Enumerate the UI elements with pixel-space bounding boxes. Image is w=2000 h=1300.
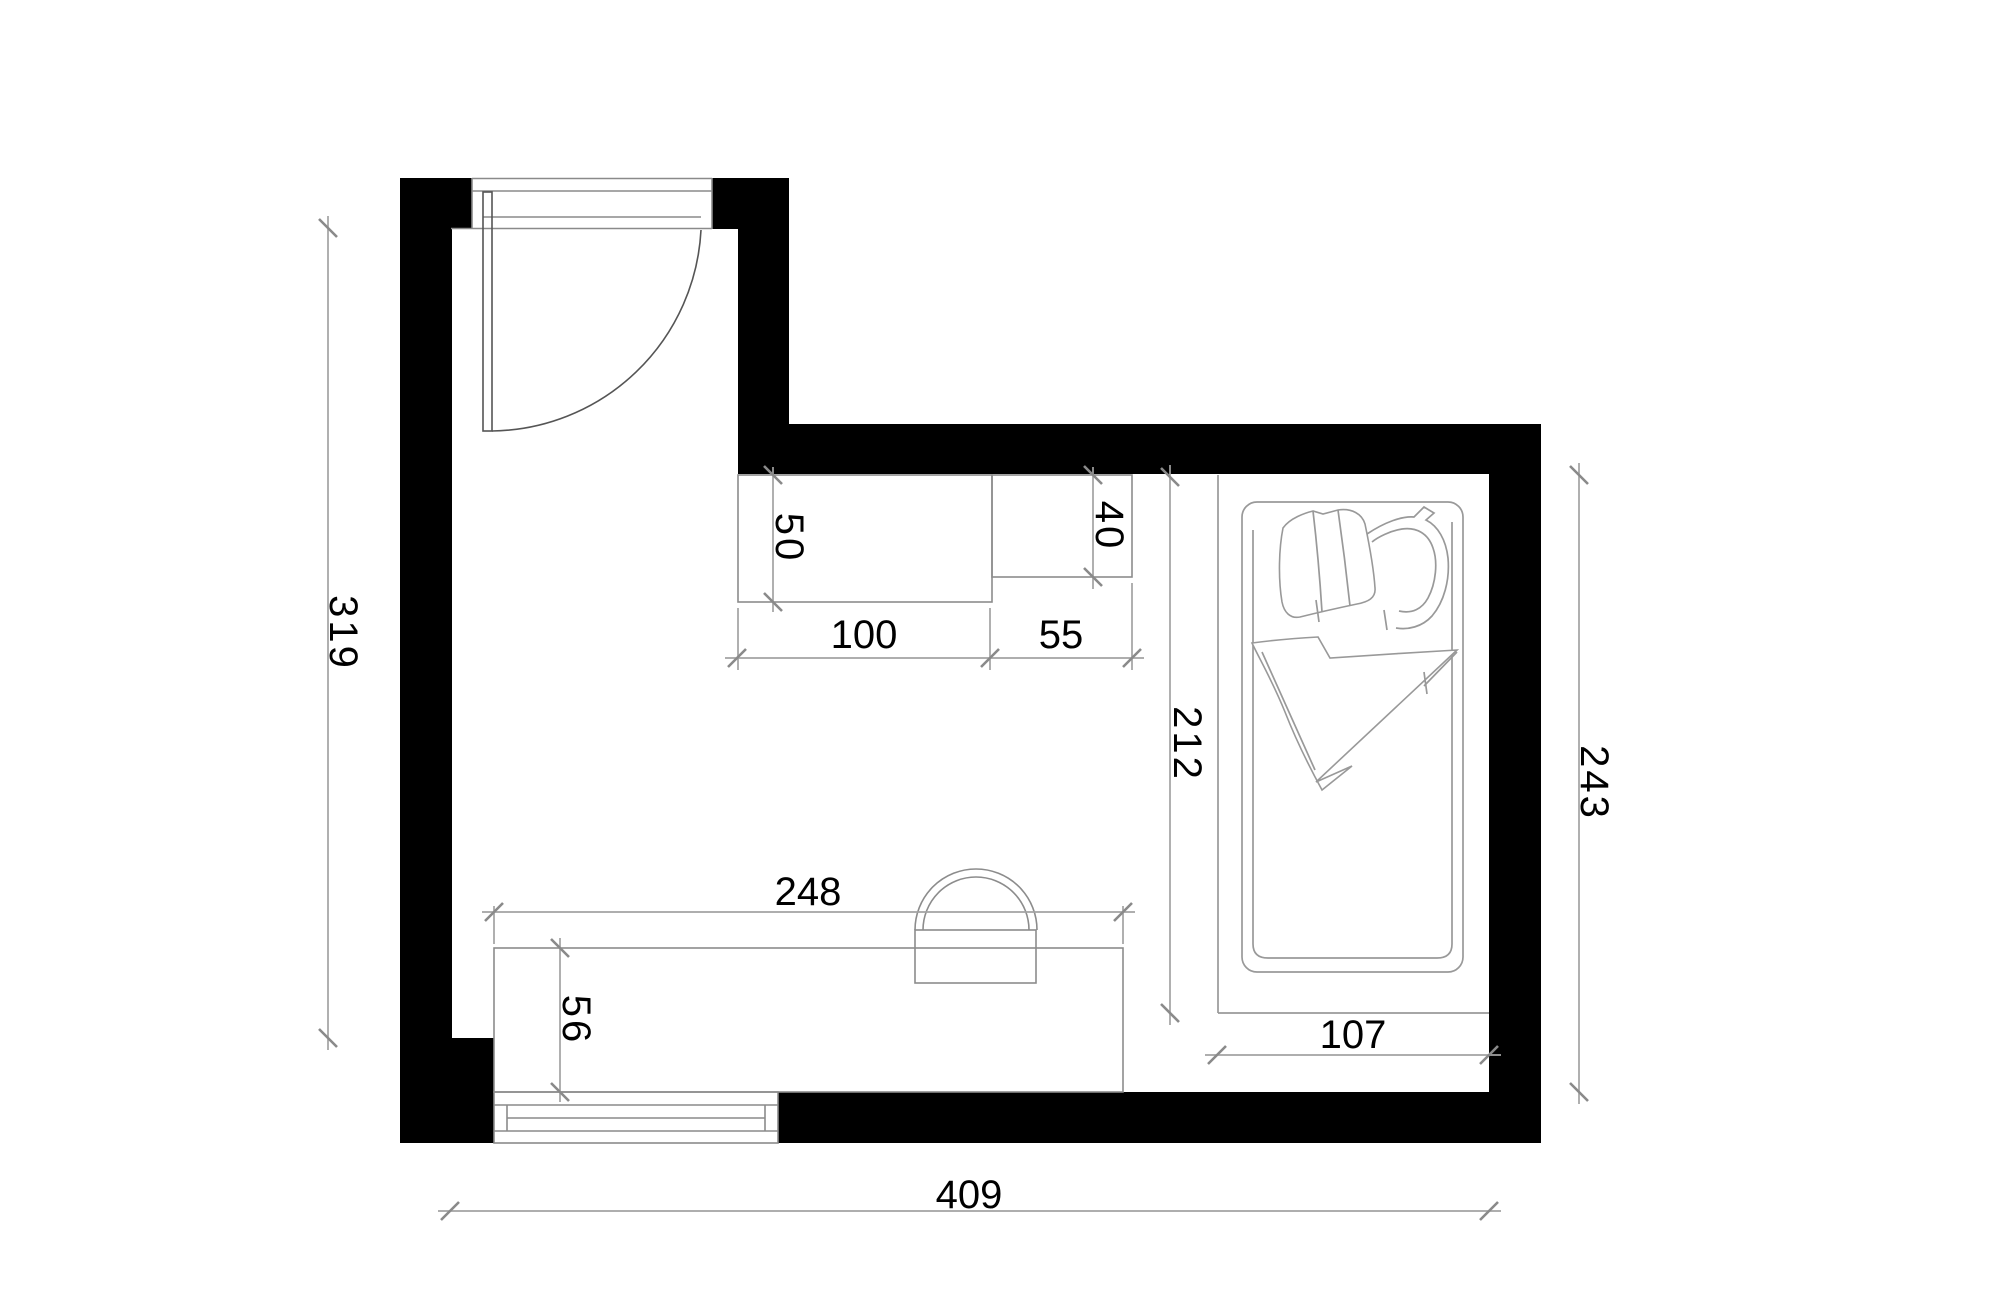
dim-label-319: 319 (321, 595, 365, 671)
floor-plan-sheet: 319 243 212 50 40 (0, 0, 2000, 1300)
dim-bed-zone-width: 107 (1205, 1013, 1501, 1064)
dim-label-56: 56 (554, 995, 598, 1046)
dim-dresser-depth: 40 (1084, 466, 1131, 589)
wall-bottom (778, 1092, 1541, 1143)
dim-label-40: 40 (1087, 501, 1131, 552)
dim-room-height-left: 319 (319, 216, 365, 1050)
wall-window-pier (450, 1038, 494, 1143)
bed (1242, 502, 1463, 972)
wall-entry-east (738, 178, 789, 474)
blanket (1252, 637, 1457, 790)
wall-door-jamb-right (712, 178, 738, 229)
dim-label-409: 409 (936, 1173, 1003, 1217)
dim-room-height-right: 243 (1570, 463, 1616, 1104)
dim-label-243: 243 (1572, 745, 1616, 821)
pillow-left (1279, 510, 1375, 618)
dim-bed-zone-height: 212 (1161, 465, 1209, 1025)
wall-top (789, 424, 1541, 474)
chair-seat (915, 930, 1036, 983)
dim-label-107: 107 (1320, 1013, 1387, 1057)
dim-desk-depth: 56 (551, 938, 598, 1102)
pillow-right-inner (1372, 529, 1436, 612)
dim-room-width-bottom: 409 (438, 1173, 1501, 1220)
floor-plan: 319 243 212 50 40 (0, 0, 2000, 1300)
dim-cabinet-row: 100 55 (725, 583, 1144, 670)
furniture (494, 475, 1489, 1092)
window (494, 1092, 778, 1143)
wall-door-jamb-left (451, 178, 472, 229)
wall-left (400, 178, 452, 1143)
dim-desk-width: 248 (482, 870, 1135, 944)
dimensions: 319 243 212 50 40 (319, 216, 1616, 1220)
chair (915, 869, 1037, 983)
door (451, 178, 712, 431)
dim-cabinet-depth: 50 (764, 466, 811, 612)
chair-backrest-inner (923, 877, 1029, 930)
dim-label-100: 100 (831, 613, 898, 657)
dim-label-212: 212 (1165, 706, 1209, 782)
dim-label-50: 50 (767, 513, 811, 564)
door-swing-arc (492, 230, 701, 431)
dim-label-248: 248 (775, 870, 842, 914)
pillow-right-tick (1384, 610, 1387, 630)
dim-label-55: 55 (1039, 613, 1084, 657)
wall-right (1489, 424, 1541, 1143)
